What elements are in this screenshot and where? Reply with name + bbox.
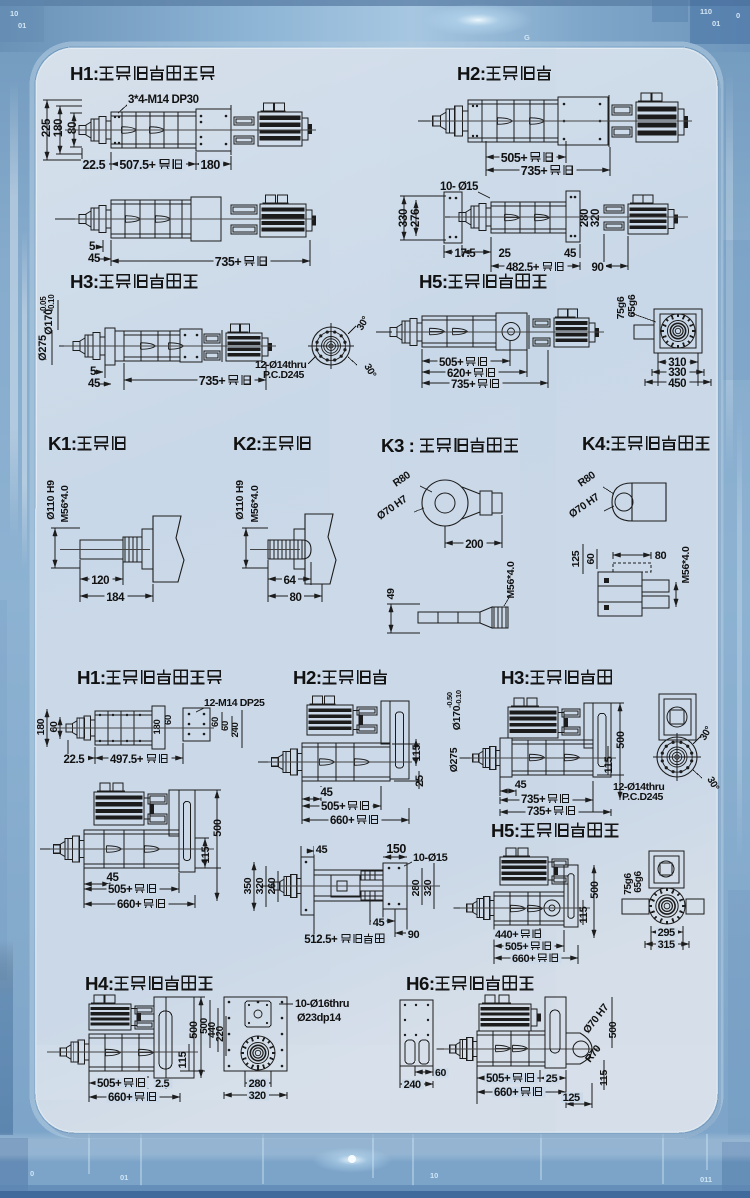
svg-text:735+: 735+ (521, 164, 548, 178)
svg-text:115: 115 (411, 744, 423, 761)
svg-text:320: 320 (590, 209, 602, 227)
svg-text:507.5+: 507.5+ (119, 158, 155, 172)
svg-text:90: 90 (408, 929, 420, 941)
svg-text:45: 45 (316, 844, 328, 856)
svg-text:Ø110 H9: Ø110 H9 (45, 480, 57, 520)
svg-text:K2:: K2: (233, 433, 262, 454)
svg-text:90: 90 (591, 262, 603, 274)
svg-text:180: 180 (35, 718, 47, 735)
svg-text:180: 180 (200, 158, 220, 172)
svg-text:220: 220 (215, 1025, 226, 1042)
svg-text:M56*4.0: M56*4.0 (249, 485, 261, 522)
svg-text:115: 115 (598, 1070, 610, 1086)
svg-text:25: 25 (498, 248, 511, 260)
svg-text:H5:: H5: (491, 820, 520, 841)
svg-text:Ø275: Ø275 (37, 335, 49, 361)
svg-text:22.5: 22.5 (64, 754, 86, 766)
svg-text:01: 01 (712, 19, 720, 28)
svg-text:125: 125 (570, 550, 582, 567)
svg-text:60: 60 (163, 715, 174, 725)
svg-text:01: 01 (18, 21, 26, 30)
svg-text:80: 80 (289, 592, 301, 604)
svg-text:225: 225 (41, 118, 53, 137)
svg-text:500: 500 (589, 881, 601, 899)
svg-text:500: 500 (212, 819, 224, 837)
svg-text:660+: 660+ (512, 953, 535, 965)
svg-text:Ø23dp14: Ø23dp14 (297, 1012, 342, 1024)
svg-text:505+: 505+ (486, 1073, 511, 1085)
svg-text:735+: 735+ (521, 794, 546, 806)
svg-text:10-Ø15: 10-Ø15 (413, 852, 448, 864)
svg-text:115: 115 (177, 1051, 189, 1068)
svg-text:280: 280 (410, 879, 422, 896)
svg-text:45: 45 (373, 917, 385, 929)
svg-text:497.5+: 497.5+ (110, 754, 144, 766)
svg-text:H6:: H6: (406, 973, 435, 994)
svg-text:0: 0 (736, 11, 740, 20)
svg-text:295: 295 (658, 927, 675, 939)
svg-text:735+: 735+ (451, 379, 476, 391)
svg-text:505+: 505+ (501, 151, 528, 165)
svg-text:64: 64 (283, 575, 296, 587)
svg-text:184: 184 (106, 592, 125, 604)
svg-text:H3:: H3: (70, 271, 99, 292)
svg-text:440+: 440+ (495, 929, 518, 941)
svg-text:-0.50: -0.50 (445, 692, 454, 708)
svg-text:G: G (524, 33, 530, 42)
svg-text:H1:: H1: (77, 667, 106, 688)
svg-text:-0.10: -0.10 (454, 690, 463, 706)
svg-text:60: 60 (585, 553, 597, 565)
svg-text:115: 115 (200, 846, 212, 863)
svg-text:H2:: H2: (457, 63, 486, 84)
svg-text:01: 01 (120, 1173, 128, 1182)
svg-text:280: 280 (249, 1078, 266, 1090)
svg-text:660+: 660+ (117, 899, 142, 911)
svg-text:660+: 660+ (330, 815, 355, 827)
svg-text:350: 350 (242, 877, 254, 894)
svg-text:320: 320 (422, 879, 434, 896)
svg-text:150: 150 (386, 842, 406, 856)
svg-text:505+: 505+ (97, 1078, 122, 1090)
svg-text:10: 10 (430, 1171, 438, 1180)
svg-text:-0.10: -0.10 (47, 294, 56, 312)
svg-text:735+: 735+ (527, 806, 552, 818)
svg-text:17.5: 17.5 (455, 248, 477, 260)
svg-text:K4:: K4: (582, 433, 611, 454)
svg-text:Ø170: Ø170 (451, 705, 463, 730)
svg-text:K1:: K1: (48, 433, 77, 454)
svg-text:115: 115 (603, 756, 615, 773)
svg-text:660+: 660+ (494, 1087, 519, 1099)
svg-text:500: 500 (607, 1021, 619, 1038)
svg-text:125: 125 (563, 1092, 580, 1104)
svg-text:K3 :: K3 : (381, 435, 414, 456)
svg-text:45: 45 (106, 872, 119, 884)
svg-text:10-: 10- (440, 181, 456, 193)
svg-text:80: 80 (655, 550, 667, 562)
svg-text:330: 330 (398, 209, 410, 227)
svg-text:25: 25 (546, 1073, 558, 1085)
svg-text:110: 110 (700, 7, 712, 16)
svg-text:482.5+: 482.5+ (506, 262, 540, 274)
svg-text:65g6: 65g6 (633, 870, 644, 892)
svg-text:180: 180 (53, 119, 65, 137)
svg-text:2.5: 2.5 (155, 1078, 169, 1090)
svg-text:15: 15 (466, 181, 479, 193)
svg-text:735+: 735+ (215, 255, 242, 269)
svg-text:60: 60 (435, 1067, 446, 1079)
svg-text:22.5: 22.5 (83, 158, 106, 172)
svg-text:240: 240 (404, 1079, 421, 1091)
svg-text:120: 120 (91, 575, 109, 587)
svg-text:80: 80 (67, 122, 79, 134)
svg-text:10: 10 (10, 9, 18, 18)
svg-text:Ø110 H9: Ø110 H9 (234, 480, 246, 520)
svg-text:45: 45 (320, 787, 333, 799)
svg-text:0: 0 (30, 1169, 34, 1178)
svg-text:65g6: 65g6 (626, 294, 638, 317)
svg-text:660+: 660+ (108, 1092, 133, 1104)
svg-text:180: 180 (152, 720, 163, 735)
svg-text:P.C.D245: P.C.D245 (263, 369, 305, 381)
svg-text:M56*4.0: M56*4.0 (680, 546, 692, 583)
svg-text:505+: 505+ (108, 884, 133, 896)
svg-text:5: 5 (89, 241, 96, 253)
svg-text:3*4-M14 DP30: 3*4-M14 DP30 (128, 94, 199, 106)
svg-text:M56*4.0: M56*4.0 (505, 561, 517, 598)
svg-text:505+: 505+ (505, 941, 528, 953)
svg-text:H1:: H1: (70, 63, 99, 84)
svg-text:320: 320 (249, 1090, 266, 1102)
svg-text:H2:: H2: (293, 667, 322, 688)
svg-text:H3:: H3: (501, 667, 530, 688)
svg-text:315: 315 (658, 939, 675, 951)
svg-text:735+: 735+ (199, 374, 226, 388)
svg-text:49: 49 (385, 588, 397, 600)
svg-text:200: 200 (465, 539, 483, 551)
svg-text:512.5+: 512.5+ (304, 934, 338, 946)
svg-text:H4:: H4: (85, 973, 114, 994)
svg-text:12-M14 DP25: 12-M14 DP25 (204, 697, 265, 709)
svg-text:M56*4.0: M56*4.0 (59, 485, 71, 522)
svg-text:505+: 505+ (321, 801, 346, 813)
svg-text:115: 115 (578, 906, 590, 923)
svg-text:Ø275: Ø275 (448, 747, 460, 772)
svg-text:45: 45 (515, 779, 527, 791)
svg-text:450: 450 (668, 378, 686, 390)
svg-text:10-Ø16thru: 10-Ø16thru (295, 998, 349, 1010)
svg-text:276: 276 (410, 209, 422, 227)
svg-text:H5:: H5: (419, 271, 448, 292)
svg-text:011: 011 (700, 1175, 712, 1184)
svg-text:45: 45 (564, 248, 577, 260)
svg-text:P.C.D245: P.C.D245 (622, 791, 664, 803)
svg-text:500: 500 (615, 731, 627, 749)
